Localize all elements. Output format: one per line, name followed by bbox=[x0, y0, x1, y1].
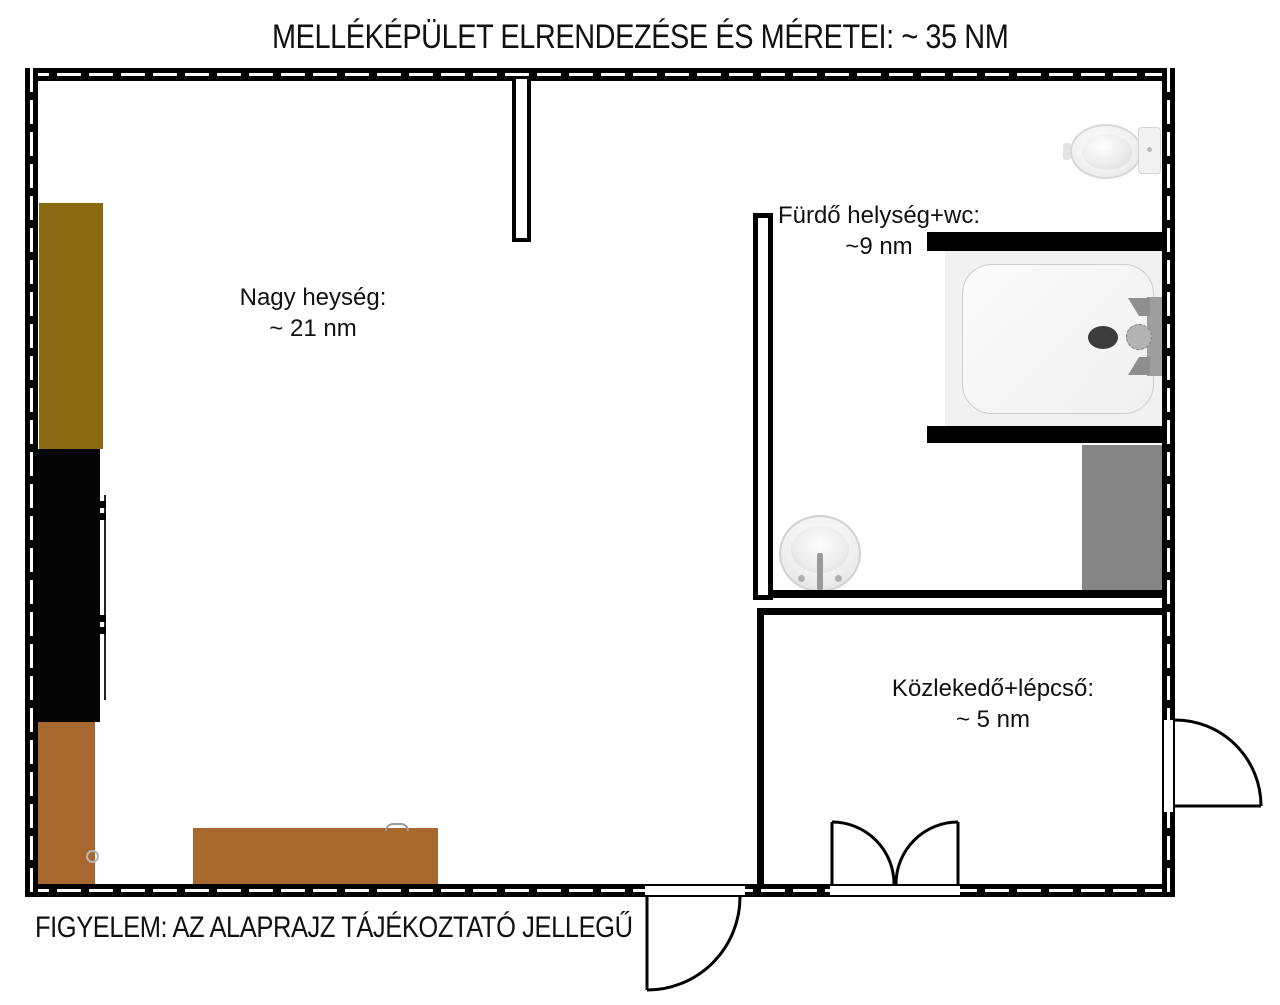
room-area: ~ 5 nm bbox=[892, 704, 1094, 735]
room-area: ~ 21 nm bbox=[240, 313, 387, 344]
door-arc bbox=[1175, 720, 1261, 806]
room-label-large: Nagy heység: ~ 21 nm bbox=[240, 282, 387, 344]
room-label-bathroom: Fürdő helység+wc: ~9 nm bbox=[778, 200, 980, 262]
disclaimer-note: FIGYELEM: AZ ALAPRAJZ TÁJÉKOZTATÓ JELLEG… bbox=[35, 911, 633, 945]
door-swing-arcs bbox=[0, 0, 1280, 1005]
room-label-corridor: Közlekedő+lépcső: ~ 5 nm bbox=[892, 673, 1094, 735]
plan-title-row: MELLÉKÉPÜLET ELRENDEZÉSE ÉS MÉRETEI: ~ 3… bbox=[0, 18, 1280, 57]
plan-title: MELLÉKÉPÜLET ELRENDEZÉSE ÉS MÉRETEI: ~ 3… bbox=[272, 18, 1008, 57]
room-area: ~9 nm bbox=[778, 231, 980, 262]
plan-footer-row: FIGYELEM: AZ ALAPRAJZ TÁJÉKOZTATÓ JELLEG… bbox=[35, 911, 738, 945]
room-name: Fürdő helység+wc: bbox=[778, 200, 980, 231]
room-name: Közlekedő+lépcső: bbox=[892, 673, 1094, 704]
door-arc bbox=[896, 822, 958, 884]
floor-plan: MELLÉKÉPÜLET ELRENDEZÉSE ÉS MÉRETEI: ~ 3… bbox=[0, 0, 1280, 1005]
door-arc bbox=[832, 822, 894, 884]
room-name: Nagy heység: bbox=[240, 282, 387, 313]
